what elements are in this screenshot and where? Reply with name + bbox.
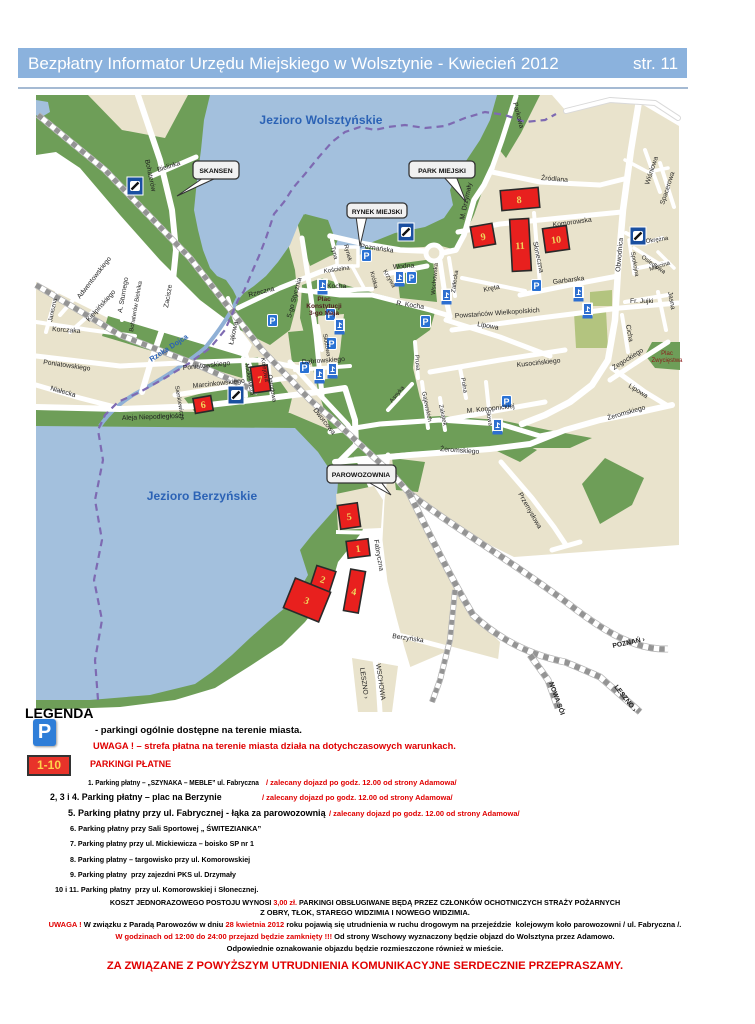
svg-text:Plac: Plac: [661, 351, 673, 357]
svg-text:LESZNO ›: LESZNO ›: [612, 684, 637, 713]
svg-text:10: 10: [550, 234, 561, 246]
svg-text:PAROWOZOWNIA: PAROWOZOWNIA: [332, 472, 390, 479]
svg-text:P: P: [533, 281, 539, 291]
svg-text:Zwycięstwa: Zwycięstwa: [651, 358, 683, 364]
svg-text:11: 11: [515, 241, 525, 252]
svg-text:SKANSEN: SKANSEN: [199, 168, 232, 175]
svg-text:P: P: [269, 316, 275, 326]
svg-text:P: P: [422, 317, 428, 327]
svg-text:NOWA SÓL: NOWA SÓL: [547, 681, 568, 715]
svg-text:Fr. Jujki: Fr. Jujki: [630, 298, 654, 305]
svg-text:P: P: [363, 251, 369, 261]
svg-text:8: 8: [516, 195, 522, 206]
svg-text:RYNEK MIEJSKI: RYNEK MIEJSKI: [352, 209, 403, 216]
svg-text:Plac: Plac: [317, 296, 331, 303]
svg-text:PARK MIEJSKI: PARK MIEJSKI: [418, 168, 466, 175]
svg-text:3-go Maja: 3-go Maja: [309, 310, 339, 317]
svg-text:Konstytucji: Konstytucji: [306, 303, 342, 310]
svg-text:P: P: [408, 273, 414, 283]
svg-text:Jezioro Wolsztyńskie: Jezioro Wolsztyńskie: [259, 113, 382, 127]
svg-text:Kocha: Kocha: [327, 283, 346, 290]
svg-text:Jezioro Berzyńskie: Jezioro Berzyńskie: [147, 489, 258, 503]
